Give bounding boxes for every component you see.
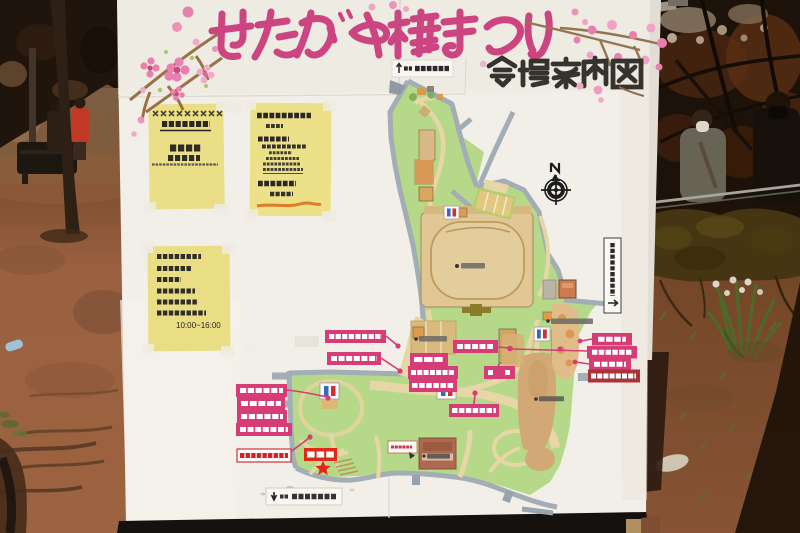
svg-text:10:00~16:00: 10:00~16:00 xyxy=(176,321,221,330)
